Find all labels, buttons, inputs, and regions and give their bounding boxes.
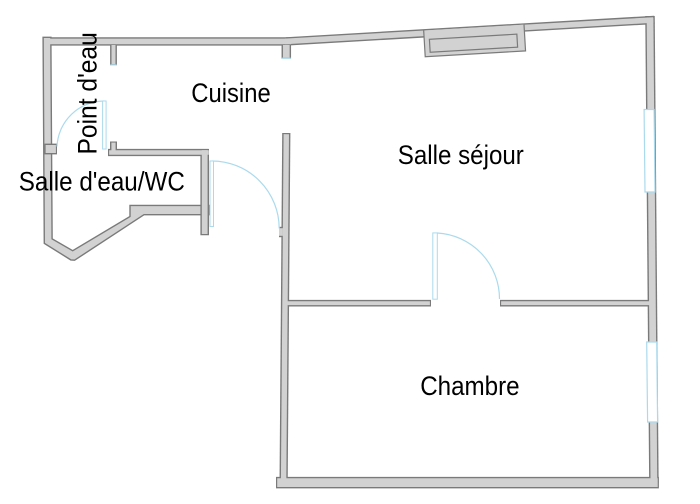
svg-text:Salle d'eau/WC: Salle d'eau/WC: [19, 167, 185, 197]
svg-text:Chambre: Chambre: [420, 371, 519, 401]
svg-text:Point d'eau: Point d'eau: [72, 32, 102, 154]
svg-text:Salle séjour: Salle séjour: [398, 140, 524, 170]
svg-text:Cuisine: Cuisine: [191, 78, 270, 108]
